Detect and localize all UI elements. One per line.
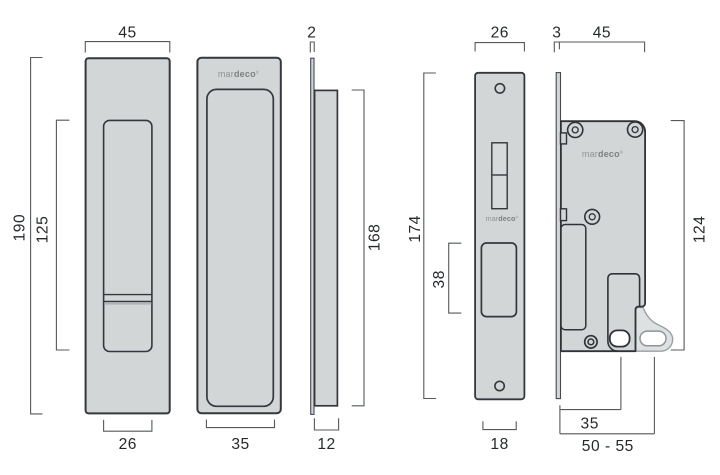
svg-text:190: 190 — [12, 214, 29, 242]
svg-text:mardeco®: mardeco® — [486, 214, 519, 223]
svg-text:3: 3 — [552, 25, 561, 42]
svg-text:12: 12 — [317, 436, 335, 453]
svg-text:45: 45 — [593, 25, 611, 42]
svg-text:168: 168 — [367, 224, 384, 252]
svg-text:125: 125 — [34, 216, 51, 244]
svg-text:124: 124 — [692, 216, 709, 244]
svg-text:35: 35 — [231, 436, 249, 453]
svg-text:50 - 55: 50 - 55 — [582, 438, 634, 455]
svg-text:174: 174 — [407, 215, 424, 243]
svg-text:35: 35 — [581, 416, 599, 433]
svg-text:26: 26 — [119, 436, 137, 453]
svg-text:2: 2 — [307, 25, 316, 42]
svg-text:mardeco®: mardeco® — [218, 69, 260, 79]
svg-text:18: 18 — [490, 436, 508, 453]
svg-text:mardeco®: mardeco® — [582, 149, 624, 159]
svg-text:45: 45 — [118, 25, 136, 42]
svg-text:38: 38 — [431, 270, 448, 288]
svg-text:26: 26 — [491, 25, 509, 42]
